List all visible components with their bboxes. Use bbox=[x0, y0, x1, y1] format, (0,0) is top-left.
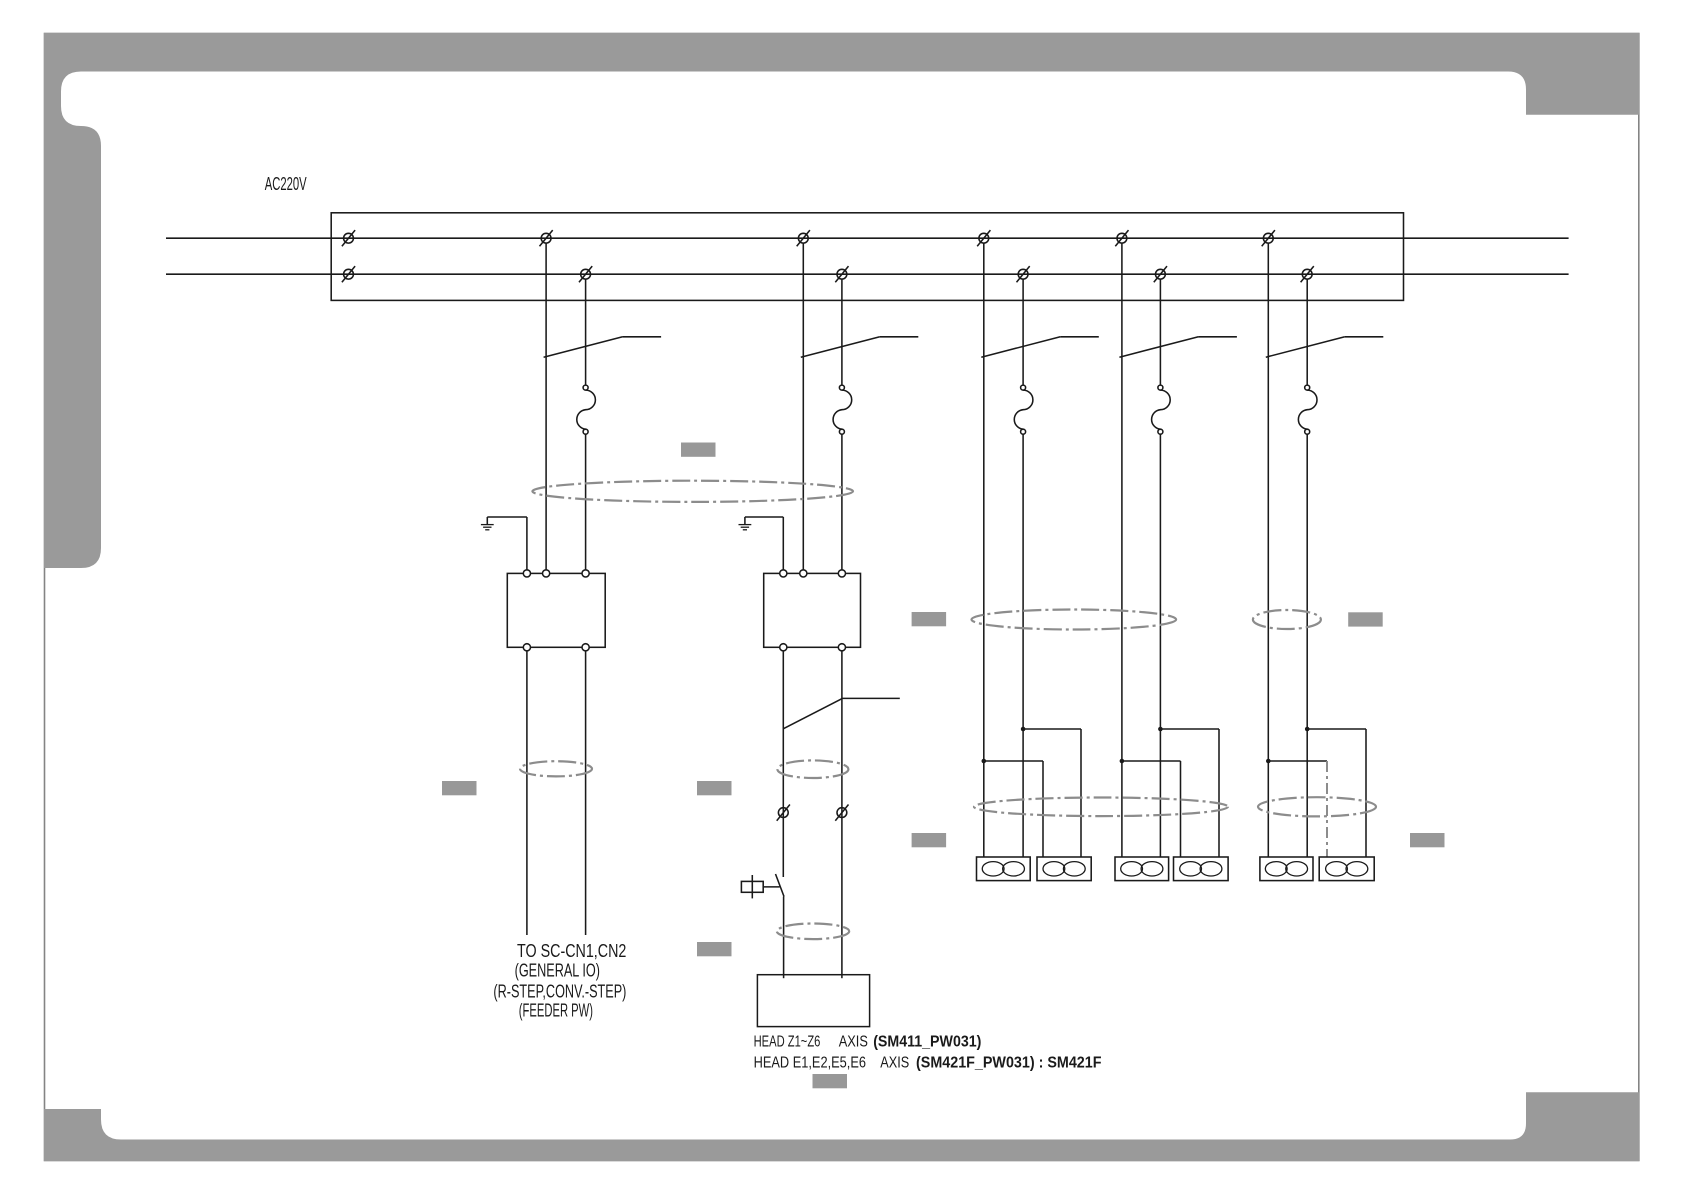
svg-text:AXIS: AXIS bbox=[880, 1055, 909, 1072]
svg-text:HEAD E1,E2,E5,E6: HEAD E1,E2,E5,E6 bbox=[754, 1055, 866, 1072]
svg-text:(SM421F_PW031) : SM421F: (SM421F_PW031) : SM421F bbox=[916, 1055, 1102, 1072]
svg-text:HEAD Z1~Z6: HEAD Z1~Z6 bbox=[754, 1034, 821, 1051]
svg-text:(GENERAL IO): (GENERAL IO) bbox=[515, 961, 600, 981]
svg-text:AXIS: AXIS bbox=[839, 1034, 868, 1051]
svg-text:(FEEDER PW): (FEEDER PW) bbox=[519, 1001, 593, 1021]
svg-text:TO SC-CN1,CN2: TO SC-CN1,CN2 bbox=[517, 941, 626, 961]
svg-text:(SM411_PW031): (SM411_PW031) bbox=[873, 1034, 981, 1051]
svg-text:AC220V: AC220V bbox=[265, 174, 307, 194]
svg-text:(R-STEP,CONV.-STEP): (R-STEP,CONV.-STEP) bbox=[493, 982, 626, 1002]
